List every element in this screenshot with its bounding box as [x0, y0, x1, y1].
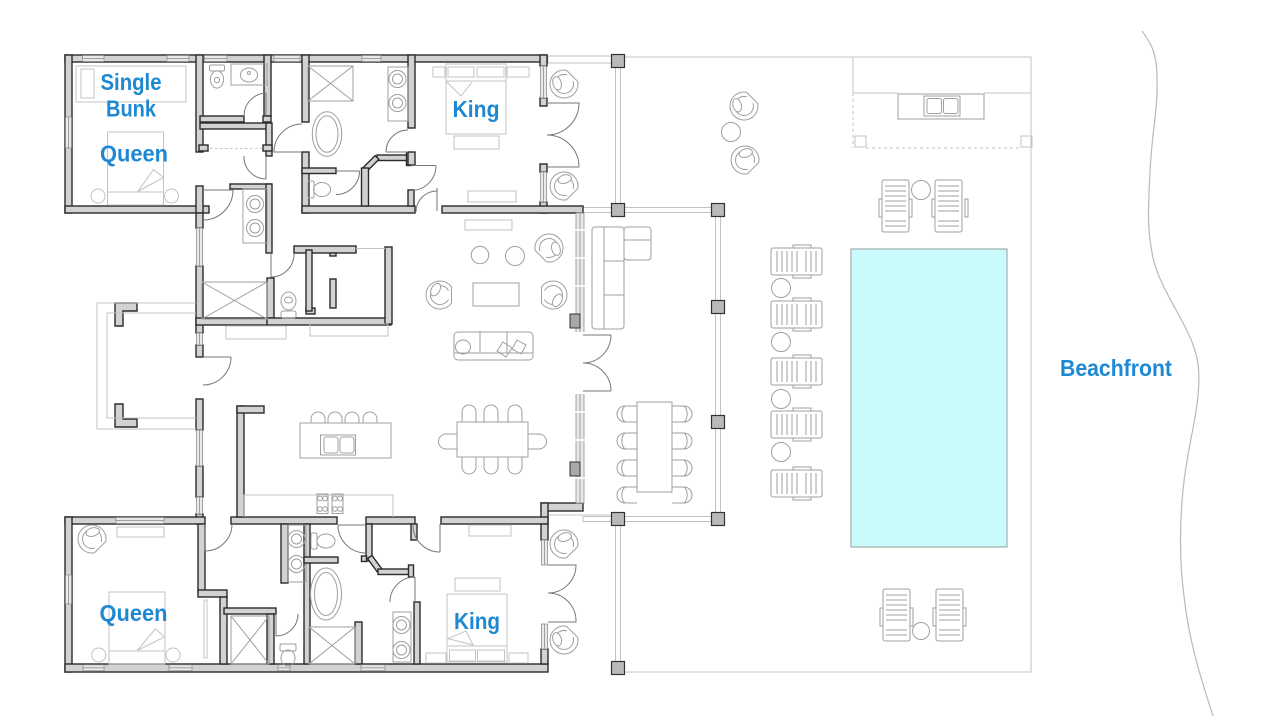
svg-text:King: King — [453, 96, 500, 122]
svg-text:Queen: Queen — [100, 600, 168, 626]
svg-text:Single: Single — [101, 69, 162, 95]
svg-text:Queen: Queen — [100, 141, 168, 167]
svg-text:Beachfront: Beachfront — [1060, 355, 1172, 381]
svg-text:King: King — [454, 608, 500, 634]
svg-text:Bunk: Bunk — [106, 96, 157, 122]
